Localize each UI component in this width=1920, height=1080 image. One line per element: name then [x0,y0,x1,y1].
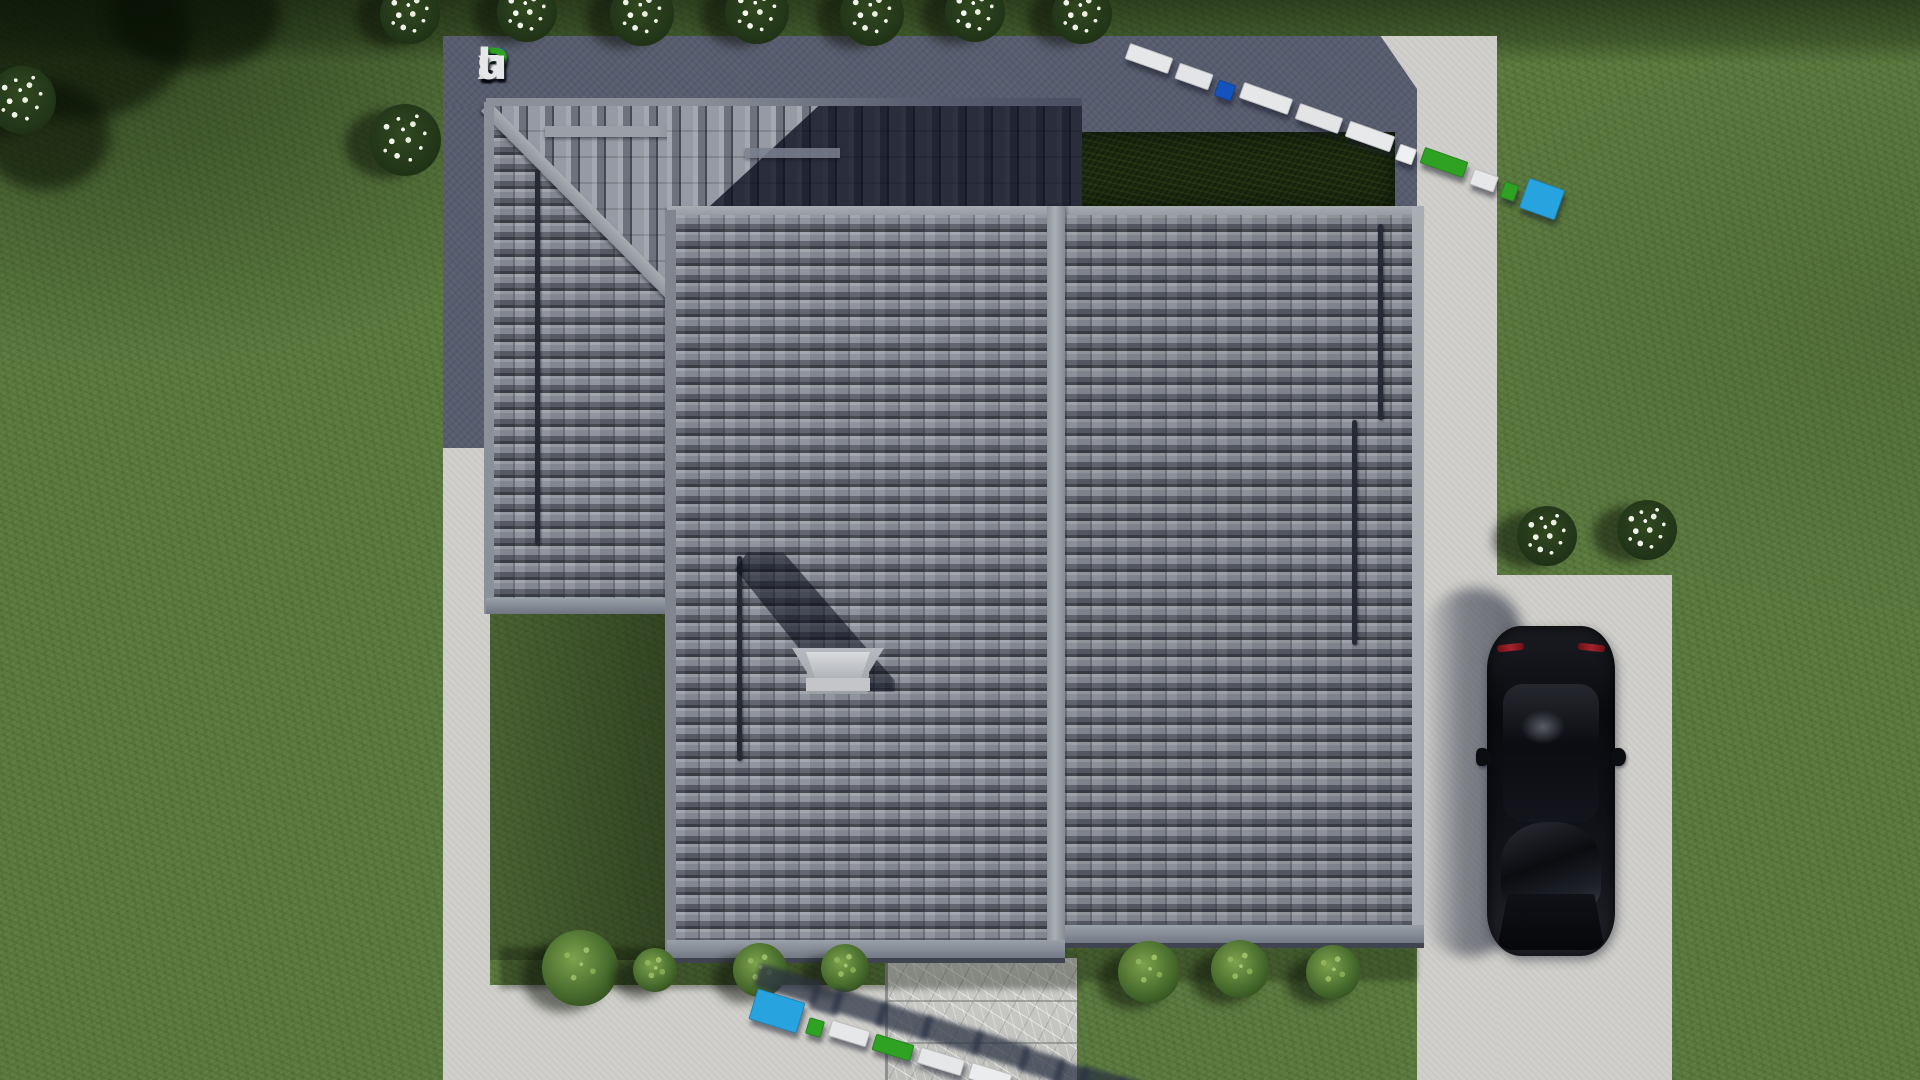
watermark-3d-bottom [0,0,1920,1080]
car-hood [1497,894,1605,950]
car-taillight-right [1578,643,1606,653]
watermark-letter-block [827,1020,870,1048]
car-roof-glass [1503,684,1599,822]
car-mirror-right [1612,748,1626,766]
watermark-letter-block [968,1063,1013,1080]
watermark-letter-block [917,1047,966,1077]
car-taillight-left [1497,643,1525,653]
watermark-letter-block [804,1017,824,1038]
watermark-letter-block [872,1034,915,1062]
car [1487,626,1615,956]
car-mirror-left [1476,748,1490,766]
logo-letter: u [477,40,509,90]
watermark-letter-shadow [1112,1075,1167,1080]
site-plan-render: FixPlans.ru [0,0,1920,1080]
